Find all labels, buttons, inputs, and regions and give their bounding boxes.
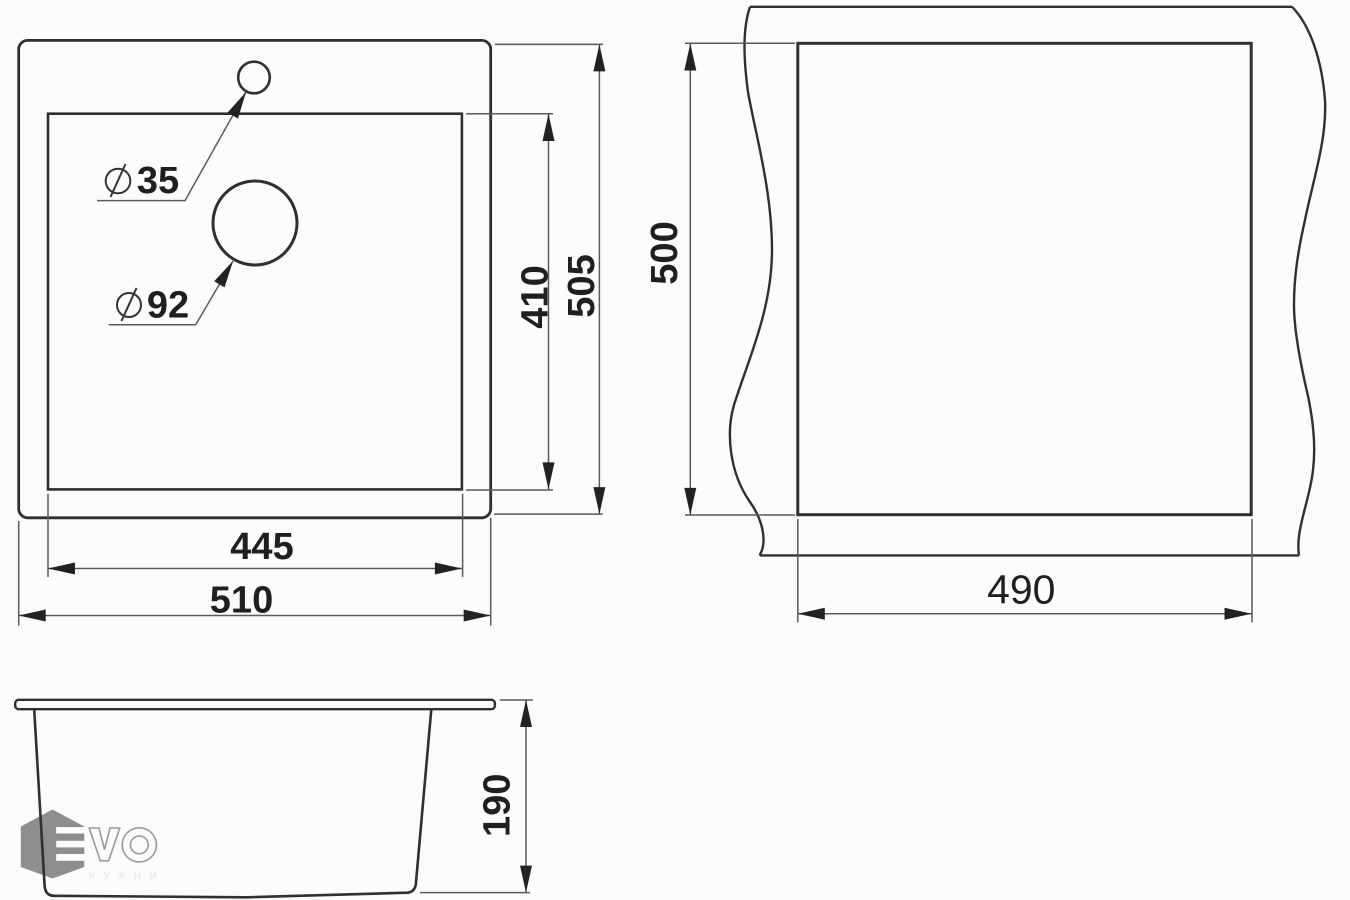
svg-text:92: 92	[147, 284, 189, 326]
svg-text:410: 410	[515, 265, 557, 328]
svg-text:510: 510	[210, 580, 273, 622]
svg-text:190: 190	[477, 774, 519, 837]
svg-text:490: 490	[987, 566, 1055, 612]
svg-text:500: 500	[644, 221, 686, 284]
svg-text:КУХНИ: КУХНИ	[89, 871, 165, 882]
svg-text:505: 505	[561, 254, 603, 317]
svg-text:35: 35	[137, 160, 179, 202]
svg-text:445: 445	[230, 526, 293, 568]
